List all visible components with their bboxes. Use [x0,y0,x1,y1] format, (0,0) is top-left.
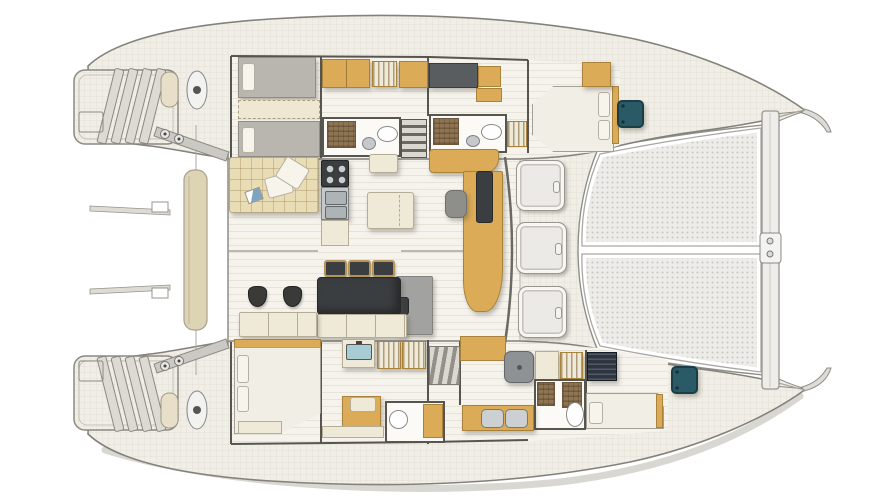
arm-bolts [161,130,184,371]
catamaran-floor-plan [0,0,872,500]
cleat [161,393,178,428]
aft-crossbeam-assembly [90,125,229,375]
hull-structure [0,0,872,500]
bridgedeck-floor [228,153,520,347]
port-hull-cabin-floor [231,57,620,158]
starboard-hull-cabin-floor [231,342,668,443]
fitting-bolt [767,238,773,244]
spike-base [152,202,168,212]
cleat [161,72,178,107]
spike-base [152,288,168,298]
bow-structure [760,109,831,391]
crossbeam-fitting [760,233,781,263]
starboard-bow-fitting [802,368,831,391]
aft-beam-bench [184,170,207,330]
fitting-bolt [767,251,773,257]
port-bow-fitting [802,109,831,132]
winch-center [193,406,201,414]
bow-trampoline [578,125,764,375]
winch-center [193,86,201,94]
